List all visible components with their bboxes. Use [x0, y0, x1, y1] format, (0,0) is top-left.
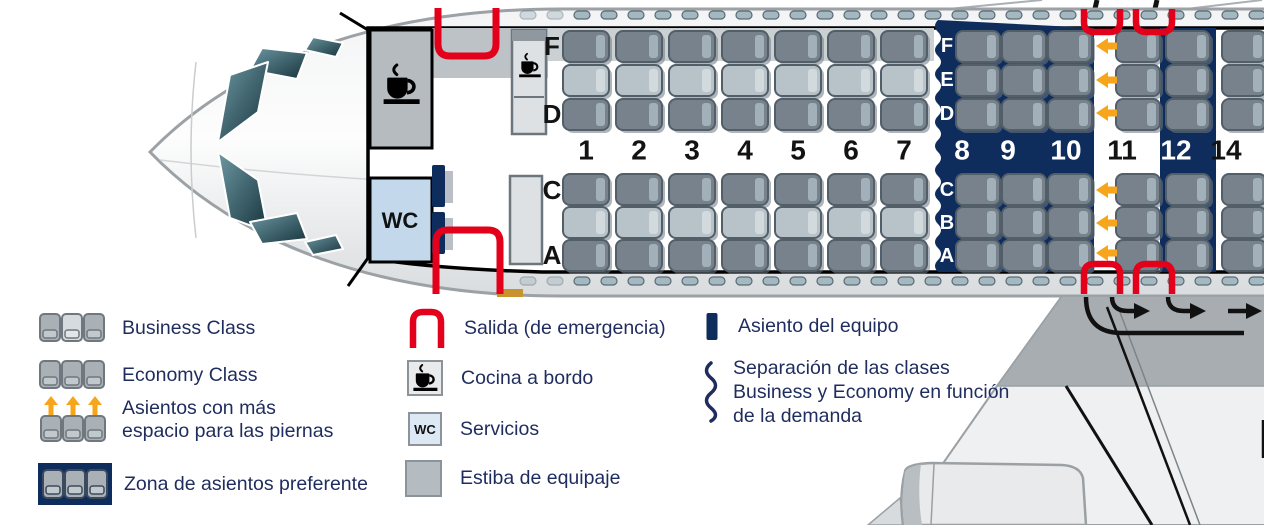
seat-cushion	[1079, 103, 1088, 126]
window-tick	[1195, 11, 1211, 19]
window-tick	[547, 277, 563, 285]
seat-cushion	[1079, 69, 1088, 92]
window-tick	[574, 277, 590, 285]
window-tick	[601, 11, 617, 19]
seat-letter: E	[940, 69, 953, 91]
seat-cushion	[1033, 211, 1042, 234]
window-tick	[844, 11, 860, 19]
window-tick	[1033, 277, 1049, 285]
seat-cushion	[861, 211, 870, 234]
seat-cushion	[755, 69, 764, 92]
window-tick	[1006, 277, 1022, 285]
seat-cushion	[1253, 178, 1262, 201]
seat-letter: B	[940, 212, 954, 234]
window-tick	[520, 277, 536, 285]
seat-cushion	[649, 69, 658, 92]
seat-cushion	[1147, 35, 1156, 58]
window-tick	[925, 277, 941, 285]
window-tick	[574, 11, 590, 19]
seat-cushion	[1079, 35, 1088, 58]
row-number: 7	[896, 135, 912, 166]
row-number: 2	[631, 135, 647, 166]
crew-seat	[432, 165, 445, 207]
window-tick	[790, 277, 806, 285]
seat-cushion	[1253, 244, 1262, 267]
seat-cushion	[914, 211, 923, 234]
seat-cushion	[861, 244, 870, 267]
seat-cushion	[755, 244, 764, 267]
stowage-column	[510, 176, 542, 264]
seat-cushion	[1147, 69, 1156, 92]
window-tick	[952, 11, 968, 19]
window-tick	[1249, 11, 1264, 19]
seat-cushion	[755, 35, 764, 58]
window-tick	[682, 11, 698, 19]
window-tick	[1060, 11, 1076, 19]
seat-cushion	[1033, 178, 1042, 201]
seat-cushion	[702, 178, 711, 201]
seat-cushion	[987, 103, 996, 126]
window-tick	[709, 11, 725, 19]
galley-column	[512, 30, 546, 134]
seat-cushion	[987, 178, 996, 201]
row-number: 14	[1210, 135, 1242, 166]
row-number: 6	[843, 135, 859, 166]
crew-seat-shadow	[445, 218, 453, 250]
window-tick	[979, 11, 995, 19]
window-tick	[655, 11, 671, 19]
seat-cushion	[914, 244, 923, 267]
window-tick	[1006, 11, 1022, 19]
window-tick	[898, 277, 914, 285]
seat-cushion	[702, 69, 711, 92]
seat-cushion	[755, 178, 764, 201]
seat-cushion	[1253, 211, 1262, 234]
seat-cushion	[649, 103, 658, 126]
engine-nacelle	[901, 463, 1086, 525]
window-tick	[817, 11, 833, 19]
seat-cushion	[1033, 244, 1042, 267]
window-tick	[1141, 277, 1157, 285]
window-tick	[1249, 277, 1264, 285]
window-tick	[790, 11, 806, 19]
window-tick	[1087, 277, 1103, 285]
seat-letter: C	[543, 175, 562, 205]
seat-cushion	[649, 178, 658, 201]
seat-cushion	[649, 244, 658, 267]
window-tick	[601, 277, 617, 285]
seat-cushion	[1197, 244, 1206, 267]
seat-cushion	[1197, 103, 1206, 126]
crew-seat-shadow	[445, 171, 453, 203]
seat-letter: C	[940, 179, 954, 201]
seat-cushion	[987, 35, 996, 58]
seat-cushion	[808, 178, 817, 201]
seat-cushion	[1197, 211, 1206, 234]
seat-cushion	[755, 211, 764, 234]
seat-cushion	[596, 103, 605, 126]
seat-cushion	[596, 69, 605, 92]
seat-letter: A	[940, 245, 954, 267]
window-tick	[1222, 11, 1238, 19]
window-tick	[871, 11, 887, 19]
seat-cushion	[914, 35, 923, 58]
seat-letter: D	[543, 99, 562, 129]
seat-cushion	[755, 103, 764, 126]
seat-cushion	[987, 69, 996, 92]
seat-letter: A	[543, 240, 562, 270]
seat-cushion	[987, 244, 996, 267]
seat-cushion	[808, 244, 817, 267]
seat-letter: D	[940, 103, 954, 125]
seat-letter: F	[544, 31, 560, 61]
seat-cushion	[702, 211, 711, 234]
seat-cushion	[596, 35, 605, 58]
seat-cushion	[649, 211, 658, 234]
seat-cushion	[861, 178, 870, 201]
seat-cushion	[1197, 69, 1206, 92]
window-tick	[628, 277, 644, 285]
seat-cushion	[1147, 211, 1156, 234]
seat-cushion	[1197, 178, 1206, 201]
row-number: 3	[684, 135, 700, 166]
seatmap-figure: WC 12345678910111214FDCAFEDCBA	[0, 0, 1264, 525]
row-number: 10	[1050, 135, 1081, 166]
seat-cushion	[808, 35, 817, 58]
seat-cushion	[914, 69, 923, 92]
row-number: 11	[1107, 135, 1137, 166]
seat-cushion	[1033, 69, 1042, 92]
seat-cushion	[914, 103, 923, 126]
galley-column-cap	[512, 30, 546, 41]
row-number: 1	[578, 135, 594, 166]
window-tick	[763, 11, 779, 19]
seat-cushion	[596, 211, 605, 234]
seat-cushion	[1147, 103, 1156, 126]
window-tick	[1033, 11, 1049, 19]
window-tick	[655, 277, 671, 285]
window-tick	[736, 277, 752, 285]
window-tick	[1195, 277, 1211, 285]
wc-label: WC	[382, 208, 419, 233]
aircraft-seatmap-svg: WC 12345678910111214FDCAFEDCBA	[0, 0, 1264, 525]
window-tick	[817, 277, 833, 285]
seat-cushion	[808, 211, 817, 234]
row-number: 5	[790, 135, 806, 166]
row-number: 8	[954, 135, 970, 166]
row-number: 9	[1000, 135, 1016, 166]
window-tick	[844, 277, 860, 285]
seat-cushion	[914, 178, 923, 201]
window-tick	[682, 277, 698, 285]
window-tick	[952, 277, 968, 285]
seat-cushion	[861, 69, 870, 92]
seat-cushion	[808, 69, 817, 92]
seat-cushion	[861, 103, 870, 126]
seat-cushion	[987, 211, 996, 234]
seat-cushion	[596, 244, 605, 267]
seat-cushion	[1079, 178, 1088, 201]
seat-cushion	[649, 35, 658, 58]
window-tick	[1087, 11, 1103, 19]
window-tick	[979, 277, 995, 285]
window-tick	[1141, 11, 1157, 19]
seat-cushion	[1079, 211, 1088, 234]
row-number: 12	[1160, 135, 1191, 166]
window-tick	[709, 277, 725, 285]
seat-cushion	[702, 244, 711, 267]
row-number: 4	[737, 135, 753, 166]
window-tick	[871, 277, 887, 285]
seat-cushion	[861, 35, 870, 58]
seat-cushion	[702, 35, 711, 58]
window-tick	[1060, 277, 1076, 285]
seat-cushion	[702, 103, 711, 126]
lower-wing	[868, 296, 1264, 525]
seat-letter: F	[941, 35, 953, 57]
seat-cushion	[808, 103, 817, 126]
window-tick	[1222, 277, 1238, 285]
seat-cushion	[1253, 35, 1262, 58]
window-tick	[736, 11, 752, 19]
cabin-front-wall	[340, 13, 368, 30]
window-tick	[520, 11, 536, 19]
seat-cushion	[1253, 103, 1262, 126]
seat-cushion	[1147, 178, 1156, 201]
window-tick	[547, 11, 563, 19]
window-tick	[898, 11, 914, 19]
seat-cushion	[1033, 103, 1042, 126]
flap-fairing	[868, 498, 905, 525]
seat-cushion	[596, 178, 605, 201]
seat-cushion	[1197, 35, 1206, 58]
seat-cushion	[1253, 69, 1262, 92]
window-tick	[763, 277, 779, 285]
seat-cushion	[1033, 35, 1042, 58]
window-tick	[925, 11, 941, 19]
window-tick	[628, 11, 644, 19]
